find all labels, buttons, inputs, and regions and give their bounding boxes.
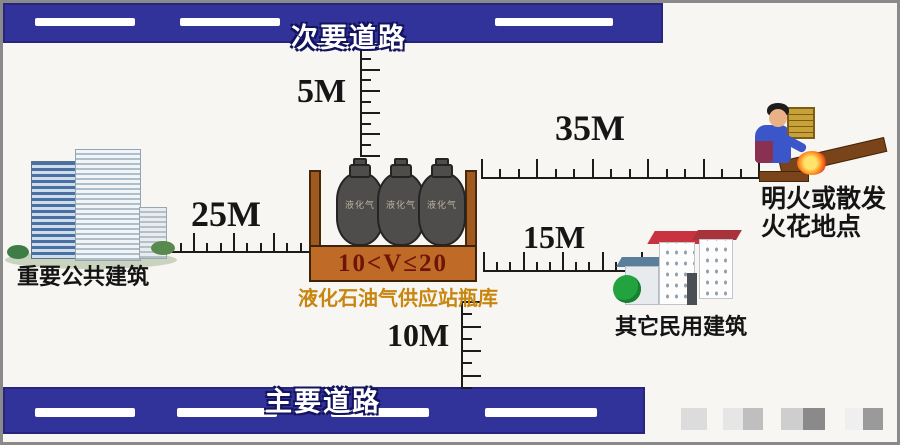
ruler-tick — [461, 326, 481, 328]
ruler-tick — [721, 169, 723, 179]
distance-10m: 10M — [387, 317, 449, 354]
ruler-tick — [740, 169, 742, 179]
watermark-block — [781, 408, 803, 430]
ruler-tick — [233, 233, 235, 253]
lane-marking — [35, 408, 135, 417]
ruler-tick — [461, 350, 481, 352]
ruler-tick — [588, 262, 590, 272]
welder-vest — [755, 141, 773, 163]
safety-distance-diagram: 次要道路 主要道路 5M 25M 35M 15M 10M 10<V≤20 液化气… — [0, 0, 900, 445]
station-volume-band: 10<V≤20 — [309, 245, 477, 282]
ruler-tick — [483, 252, 485, 272]
bush — [151, 241, 175, 255]
civil-building-label: 其它民用建筑 — [615, 309, 747, 341]
public-building-illustration — [19, 149, 169, 271]
lane-marking — [485, 408, 597, 417]
ruler-tick — [206, 243, 208, 253]
volume-range-text: 10<V≤20 — [338, 250, 448, 278]
ruler-tick — [360, 90, 380, 92]
lane-marking — [180, 18, 280, 26]
ruler-10m — [461, 301, 463, 387]
lane-marking — [495, 18, 613, 26]
welder-face — [769, 109, 787, 127]
watermark-block — [743, 408, 763, 430]
gas-cylinders: 液化气 液化气 液化气 — [331, 159, 471, 246]
ruler-tick — [360, 144, 371, 146]
distance-15m: 15M — [523, 219, 585, 256]
ruler-tick — [220, 243, 222, 253]
ruler-tick — [536, 159, 538, 179]
cylinder-text: 液化气 — [427, 198, 457, 211]
flame-point-label: 明火或散发 火花地点 — [761, 185, 886, 241]
ruler-tick — [300, 243, 302, 253]
ruler-tick — [536, 262, 538, 272]
ruler-tick — [555, 169, 557, 179]
ruler-tick — [575, 262, 577, 272]
ruler-tick — [666, 169, 668, 179]
ruler-tick — [602, 252, 604, 272]
ruler-tick — [273, 233, 275, 253]
building-tower — [31, 161, 77, 259]
ruler-tick — [360, 79, 371, 81]
ruler-tick — [360, 101, 371, 103]
ruler-tick — [549, 262, 551, 272]
flame-label-line1: 明火或散发 — [761, 185, 886, 213]
ruler-tick — [260, 243, 262, 253]
ruler-tick — [481, 159, 483, 179]
public-building-label: 重要公共建筑 — [17, 259, 149, 291]
gas-cylinder: 液化气 — [418, 172, 466, 246]
ruler-tick — [518, 169, 520, 179]
doorway — [687, 273, 697, 305]
secondary-road-label: 次要道路 — [291, 16, 407, 55]
building-tower — [75, 149, 141, 261]
flame-label-line2: 火花地点 — [761, 213, 886, 241]
ruler-tick — [360, 69, 380, 71]
ruler-tick — [360, 155, 380, 157]
welding-mask — [787, 107, 815, 139]
distance-25m: 25M — [191, 193, 261, 235]
ruler-tick — [360, 58, 371, 60]
ruler-tick — [360, 123, 371, 125]
ruler-tick — [647, 159, 649, 179]
ruler-5m — [360, 47, 362, 155]
ruler-tick — [573, 169, 575, 179]
ruler-tick — [461, 362, 472, 364]
ruler-tick — [246, 243, 248, 253]
watermark-block — [723, 408, 743, 430]
ruler-tick — [592, 159, 594, 179]
cylinder-text: 液化气 — [386, 198, 416, 211]
watermark-block — [803, 408, 825, 430]
ruler-tick — [193, 233, 195, 253]
building-tower — [699, 239, 733, 299]
bush — [7, 245, 29, 259]
ruler-tick — [461, 387, 472, 389]
ruler-tick — [461, 313, 472, 315]
watermark-block — [845, 408, 863, 430]
wooden-beam — [759, 171, 809, 182]
lane-marking — [35, 18, 135, 26]
lane-marking — [177, 408, 277, 417]
flame-icon — [797, 151, 827, 175]
ruler-tick — [180, 243, 182, 253]
ruler-tick — [360, 133, 380, 135]
ruler-tick — [610, 169, 612, 179]
welder-illustration — [751, 99, 891, 189]
distance-35m: 35M — [555, 107, 625, 149]
watermark-block — [681, 408, 707, 430]
tree-icon — [613, 275, 641, 303]
ruler-tick — [286, 243, 288, 253]
ruler-tick — [461, 375, 481, 377]
ruler-tick — [703, 159, 705, 179]
station-caption: 液化石油气供应站瓶库 — [296, 282, 500, 311]
ruler-tick — [509, 262, 511, 272]
civil-building-illustration — [615, 229, 740, 309]
watermark-block — [863, 408, 883, 430]
cylinder-text: 液化气 — [345, 198, 375, 211]
ruler-tick — [684, 169, 686, 179]
ruler-tick — [360, 112, 380, 114]
ruler-tick — [461, 338, 472, 340]
main-road-label: 主要道路 — [265, 380, 381, 419]
ruler-tick — [629, 169, 631, 179]
distance-5m: 5M — [297, 73, 346, 111]
ruler-tick — [496, 262, 498, 272]
ruler-35m — [481, 177, 758, 179]
ruler-25m — [153, 251, 313, 253]
ruler-tick — [499, 169, 501, 179]
